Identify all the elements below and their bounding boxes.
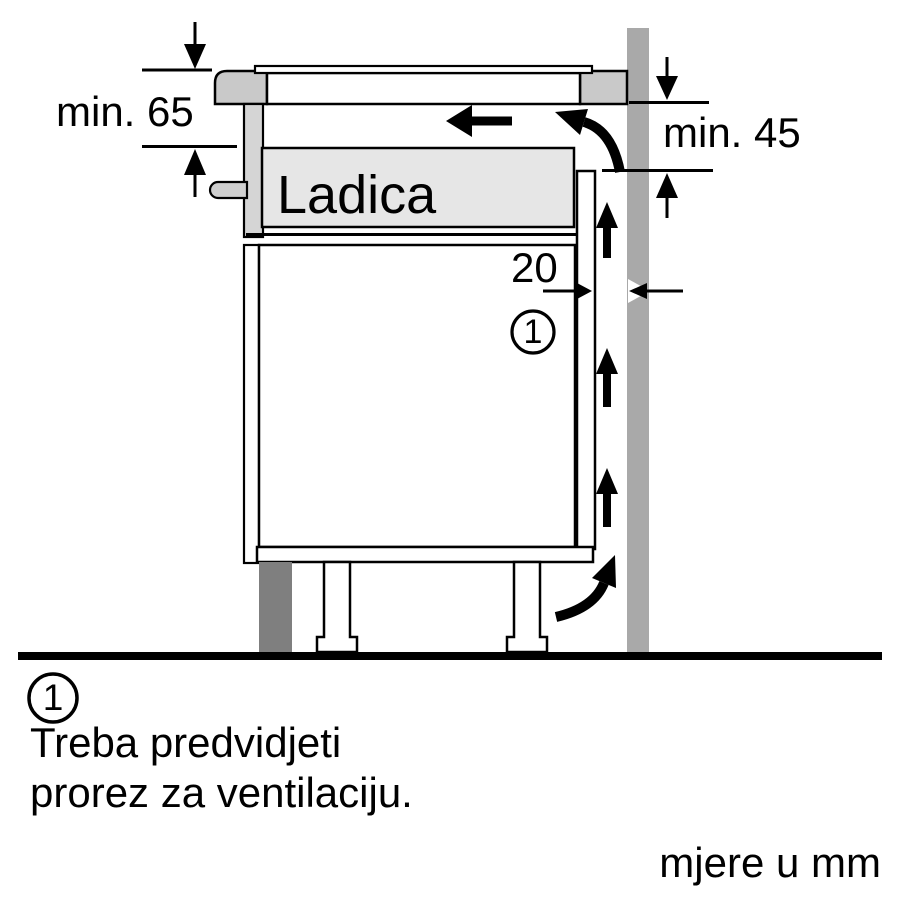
hob-glass-top: [255, 66, 592, 73]
cabinet-door-section: [244, 245, 259, 563]
dim65-bottom-line: [142, 145, 237, 148]
worktop-rear-section: [580, 71, 627, 104]
vent-up-arrow-icon: [596, 202, 618, 228]
drawer-handle: [210, 182, 247, 198]
dim45-down-arrow-icon: [656, 76, 678, 100]
dim20-right-tail: [646, 290, 683, 293]
vent-up-arrow-tail: [603, 494, 611, 527]
airflow-curve-bottom: [556, 583, 604, 617]
airflow-left-arrow-tail: [468, 117, 512, 126]
cabinet-leg-rear: [507, 562, 547, 652]
label-min-45: min. 45: [663, 112, 801, 154]
cabinet-back-panel: [577, 171, 595, 549]
drawer-front-panel: [244, 104, 263, 237]
floor-line: [18, 652, 882, 660]
dim65-down-arrow-icon: [184, 44, 206, 69]
label-min-65: min. 65: [56, 91, 194, 133]
worktop-front-section: [215, 71, 267, 104]
units-caption: mjere u mm: [659, 842, 881, 884]
label-gap-20: 20: [511, 247, 558, 289]
cabinet-bottom-panel: [257, 547, 593, 562]
shelf-line: [246, 233, 576, 236]
dim65-up-arrow-icon: [184, 149, 206, 175]
vent-up-arrow-icon: [596, 468, 618, 494]
airflow-curve-top: [584, 122, 620, 172]
plinth-panel: [259, 562, 292, 652]
callout-number-diagram: 1: [512, 312, 554, 352]
dim65-top-line: [142, 69, 212, 72]
hob-body: [267, 73, 580, 104]
dim45-up-arrow-tail: [666, 198, 669, 218]
dim45-up-arrow-icon: [656, 173, 678, 198]
note-line-1: Treba predvidjeti: [30, 722, 341, 764]
vent-up-arrow-tail: [603, 374, 611, 407]
note-line-2: prorez za ventilaciju.: [30, 772, 413, 814]
installation-diagram-page: min. 65 min. 45 20 Ladica 1 1 Treba pred…: [0, 0, 900, 900]
label-drawer: Ladica: [277, 168, 436, 222]
dim65-down-arrow-tail: [194, 22, 197, 46]
vent-up-arrow-icon: [596, 348, 618, 374]
airflow-left-arrow-icon: [446, 105, 472, 137]
cabinet-leg-front: [317, 562, 357, 652]
dim45-down-arrow-tail: [666, 57, 669, 77]
dim45-top-line: [629, 101, 709, 104]
callout-number-note: 1: [33, 677, 73, 719]
airflow-curve-top-arrow-icon: [555, 109, 588, 135]
wall-section: [627, 28, 649, 653]
dim65-up-arrow-tail: [194, 175, 197, 197]
vent-up-arrow-tail: [603, 228, 611, 258]
